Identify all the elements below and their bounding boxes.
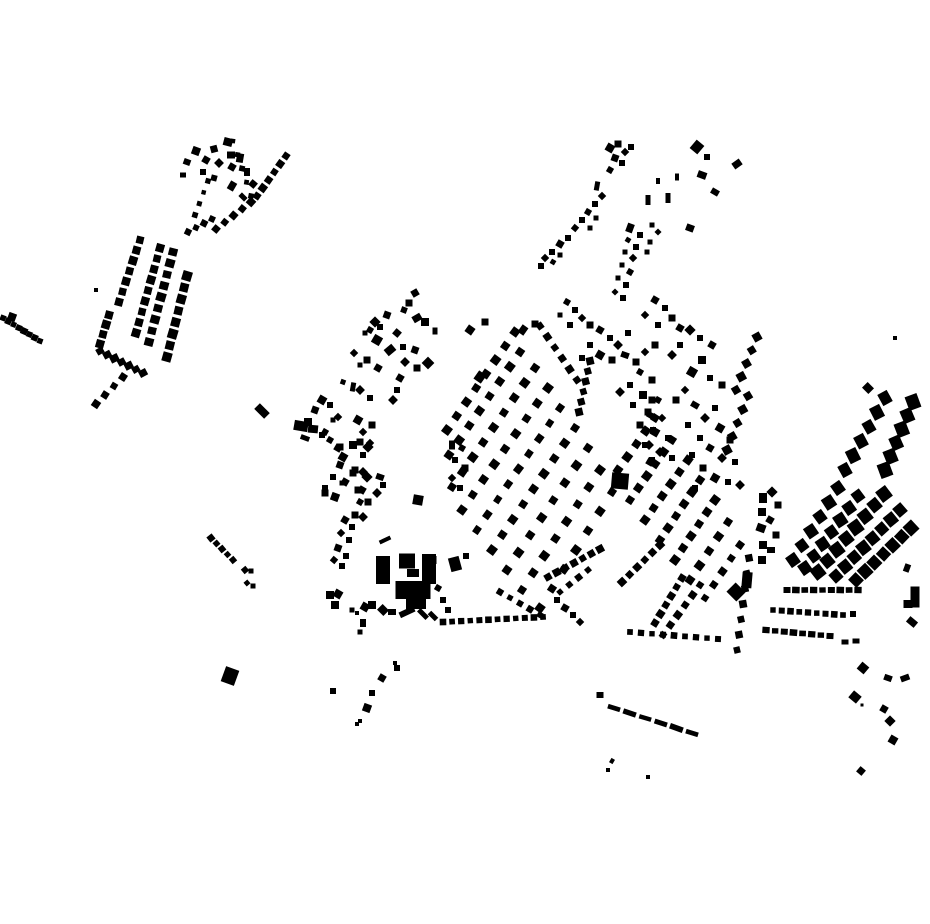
building: [772, 628, 779, 634]
building: [888, 434, 904, 451]
building: [644, 440, 654, 450]
building: [513, 615, 519, 621]
building: [587, 342, 593, 348]
building: [598, 192, 606, 200]
building: [697, 170, 708, 180]
building: [594, 181, 600, 191]
building: [641, 470, 653, 482]
building: [372, 488, 382, 498]
building: [572, 375, 581, 384]
building: [904, 600, 913, 608]
building: [751, 331, 762, 342]
building: [567, 322, 573, 328]
building: [569, 558, 579, 568]
building: [709, 494, 721, 506]
building: [377, 604, 389, 616]
building: [449, 619, 455, 625]
building: [893, 420, 910, 438]
building: [131, 328, 142, 339]
building: [861, 704, 864, 707]
building: [149, 264, 159, 274]
building: [789, 629, 797, 636]
building: [281, 151, 290, 160]
building: [857, 662, 870, 675]
building: [822, 611, 828, 617]
building: [191, 146, 201, 156]
building: [883, 674, 893, 682]
building: [690, 140, 705, 155]
building: [330, 688, 336, 694]
building: [685, 223, 695, 232]
building: [639, 714, 652, 722]
building: [845, 447, 861, 464]
building: [571, 224, 579, 232]
building: [555, 403, 565, 414]
building: [831, 611, 838, 618]
building: [201, 190, 206, 195]
building: [362, 703, 372, 713]
building: [350, 470, 357, 477]
building: [532, 398, 543, 409]
building: [138, 307, 147, 316]
building: [496, 588, 505, 597]
building: [713, 531, 725, 543]
building: [350, 382, 356, 392]
building: [417, 608, 429, 620]
building: [513, 463, 524, 474]
building: [530, 363, 541, 374]
building: [377, 673, 387, 683]
building: [270, 168, 279, 177]
building: [521, 413, 531, 423]
building: [327, 402, 333, 408]
building: [641, 311, 649, 319]
building: [518, 324, 529, 335]
building: [853, 639, 860, 644]
building: [155, 243, 165, 253]
building: [110, 382, 119, 391]
building: [132, 245, 142, 255]
building: [799, 630, 806, 636]
building: [704, 635, 710, 641]
building: [218, 545, 227, 554]
building: [534, 433, 545, 444]
building: [646, 775, 650, 779]
building: [615, 141, 622, 148]
building: [516, 599, 524, 607]
building: [570, 423, 580, 433]
building: [669, 455, 675, 461]
building: [440, 597, 446, 603]
building: [837, 462, 853, 478]
building: [180, 173, 186, 178]
building: [732, 459, 738, 465]
building: [448, 556, 462, 572]
building: [707, 375, 713, 381]
building: [583, 525, 594, 536]
building: [688, 590, 698, 600]
building: [632, 562, 642, 572]
building: [319, 432, 325, 438]
building: [846, 587, 853, 593]
building: [792, 587, 800, 594]
building: [406, 599, 426, 609]
building: [665, 435, 671, 441]
building: [229, 556, 237, 564]
building: [758, 508, 766, 516]
building: [681, 600, 690, 609]
building: [707, 340, 717, 350]
building: [685, 422, 691, 428]
building: [701, 594, 710, 603]
building: [414, 365, 421, 372]
building: [433, 328, 438, 335]
building: [735, 480, 745, 490]
building: [134, 317, 144, 327]
building: [747, 345, 757, 355]
building: [673, 397, 680, 404]
building: [493, 495, 502, 505]
building: [626, 268, 634, 276]
building: [322, 485, 328, 491]
building: [853, 433, 869, 450]
building: [504, 361, 516, 373]
building: [500, 341, 511, 352]
building: [770, 607, 775, 612]
building: [672, 583, 681, 592]
building: [781, 629, 788, 635]
building: [168, 247, 178, 257]
building: [625, 330, 631, 336]
building: [143, 286, 152, 295]
building: [104, 310, 114, 320]
building: [474, 405, 486, 417]
building: [507, 514, 519, 526]
building: [636, 368, 644, 376]
building: [655, 609, 666, 620]
building: [331, 601, 339, 609]
building: [692, 485, 698, 491]
building: [597, 692, 604, 698]
building: [212, 539, 220, 547]
building: [854, 587, 861, 593]
building: [621, 148, 629, 156]
building: [531, 614, 538, 621]
building: [101, 319, 112, 330]
building: [801, 587, 808, 593]
building: [669, 315, 676, 322]
building: [710, 187, 720, 196]
building: [411, 346, 420, 355]
building: [828, 587, 835, 593]
building: [818, 632, 825, 638]
building: [611, 288, 618, 295]
building: [759, 493, 767, 503]
building: [662, 522, 674, 534]
building: [373, 363, 383, 373]
building: [712, 405, 718, 411]
building: [517, 585, 527, 595]
building: [572, 307, 578, 313]
building: [619, 160, 625, 166]
building: [369, 422, 376, 429]
building: [208, 215, 216, 223]
building: [149, 314, 160, 325]
building: [330, 474, 336, 480]
building: [594, 506, 606, 518]
building: [735, 371, 747, 383]
building: [440, 619, 447, 626]
building: [121, 276, 131, 286]
building: [704, 546, 715, 557]
building: [486, 544, 498, 556]
building: [850, 488, 865, 503]
building: [805, 609, 812, 616]
building: [467, 618, 473, 624]
building: [542, 332, 552, 342]
building: [211, 224, 221, 234]
building: [731, 385, 742, 396]
building: [666, 193, 671, 203]
building: [464, 420, 475, 431]
building: [488, 458, 500, 470]
building: [147, 326, 157, 335]
building: [383, 311, 392, 320]
building: [773, 532, 780, 539]
building: [467, 451, 479, 463]
building: [411, 313, 422, 324]
building: [705, 443, 715, 453]
building: [670, 632, 677, 639]
building: [812, 509, 828, 525]
building: [558, 313, 563, 318]
building: [685, 729, 699, 737]
building: [355, 487, 362, 494]
building: [654, 719, 668, 728]
building: [830, 480, 846, 496]
building: [326, 591, 334, 599]
building: [550, 533, 561, 544]
building: [584, 566, 592, 574]
building: [806, 548, 821, 563]
building: [91, 399, 102, 410]
building: [814, 610, 819, 615]
building: [695, 475, 706, 486]
building: [625, 570, 634, 579]
building: [584, 208, 592, 216]
building: [677, 342, 683, 348]
building: [819, 587, 826, 593]
building: [367, 395, 373, 401]
building: [808, 631, 816, 638]
building: [684, 574, 695, 585]
building: [766, 486, 777, 497]
building: [824, 524, 840, 540]
building: [633, 482, 644, 493]
building: [649, 631, 655, 637]
building: [700, 413, 710, 423]
building: [510, 428, 522, 440]
building: [456, 504, 468, 516]
building: [349, 524, 355, 530]
building: [458, 618, 465, 625]
building: [646, 195, 651, 205]
building: [400, 344, 406, 350]
building: [696, 581, 705, 590]
building: [727, 437, 734, 444]
building: [406, 300, 413, 307]
building: [421, 318, 429, 326]
building: [238, 192, 247, 201]
building: [248, 179, 258, 189]
building: [400, 357, 410, 367]
building: [482, 319, 489, 326]
building: [649, 397, 656, 404]
building: [538, 550, 550, 562]
building: [380, 482, 386, 488]
building: [861, 419, 876, 435]
building: [541, 254, 549, 262]
building: [560, 603, 570, 613]
building: [672, 610, 683, 621]
building: [649, 377, 656, 384]
building: [637, 422, 644, 429]
building: [821, 494, 838, 511]
building: [181, 270, 193, 282]
building: [167, 328, 179, 340]
building: [832, 512, 849, 529]
building: [755, 523, 766, 534]
building: [170, 317, 181, 328]
building: [645, 250, 650, 255]
building: [628, 144, 634, 150]
building: [412, 494, 424, 506]
building: [765, 515, 775, 525]
building: [581, 377, 590, 386]
building: [717, 566, 728, 577]
building: [254, 403, 270, 419]
building: [809, 563, 826, 581]
building: [221, 666, 240, 686]
building: [700, 465, 707, 472]
building: [607, 335, 613, 341]
building: [478, 474, 489, 485]
building: [639, 391, 647, 399]
building: [900, 674, 911, 683]
building: [543, 572, 553, 582]
building: [353, 415, 364, 426]
building: [662, 305, 668, 311]
building: [136, 236, 145, 245]
building: [841, 500, 857, 516]
building: [681, 386, 689, 394]
building: [666, 620, 676, 630]
building: [893, 336, 897, 340]
building: [678, 543, 689, 554]
building: [257, 183, 268, 194]
building: [856, 766, 866, 776]
building: [358, 512, 368, 522]
building: [388, 609, 396, 615]
building: [538, 263, 544, 269]
building: [594, 464, 606, 476]
building: [879, 704, 889, 714]
building: [574, 407, 583, 416]
building: [472, 525, 482, 535]
building: [488, 422, 500, 434]
building: [434, 584, 442, 592]
building: [657, 490, 668, 501]
building: [339, 563, 345, 569]
building: [94, 288, 98, 292]
building: [352, 512, 359, 519]
building: [584, 367, 592, 375]
building: [739, 600, 748, 609]
building: [578, 554, 587, 563]
building: [578, 314, 586, 322]
building: [640, 555, 649, 564]
building: [595, 325, 605, 335]
building: [665, 478, 677, 490]
building: [243, 579, 250, 586]
building: [155, 291, 167, 302]
building: [100, 390, 110, 400]
building: [694, 519, 704, 529]
building: [518, 499, 528, 509]
building: [638, 630, 645, 637]
building: [159, 281, 170, 291]
building: [407, 569, 419, 577]
building: [666, 591, 676, 601]
building: [200, 169, 206, 175]
building: [490, 354, 502, 366]
building: [678, 498, 689, 509]
building: [697, 435, 703, 441]
building: [392, 328, 402, 338]
building: [524, 449, 534, 459]
building: [497, 529, 508, 540]
building: [715, 423, 726, 434]
building: [650, 295, 660, 305]
building: [525, 530, 536, 541]
building: [784, 587, 791, 593]
building: [238, 204, 247, 213]
building: [594, 216, 599, 221]
building: [629, 254, 637, 262]
building: [394, 387, 400, 393]
building: [173, 306, 183, 316]
building: [787, 608, 794, 615]
building: [641, 348, 649, 356]
building: [609, 758, 615, 764]
building: [554, 597, 560, 603]
building: [745, 554, 754, 563]
building: [558, 253, 563, 258]
building: [393, 661, 397, 665]
building: [140, 296, 150, 306]
building: [364, 357, 371, 364]
building: [494, 376, 505, 387]
building: [375, 473, 385, 481]
building: [396, 581, 431, 599]
building: [741, 572, 752, 589]
building: [356, 498, 364, 506]
building: [710, 473, 721, 484]
building: [422, 357, 435, 370]
building: [621, 451, 633, 463]
building: [620, 295, 626, 301]
building: [192, 212, 199, 219]
